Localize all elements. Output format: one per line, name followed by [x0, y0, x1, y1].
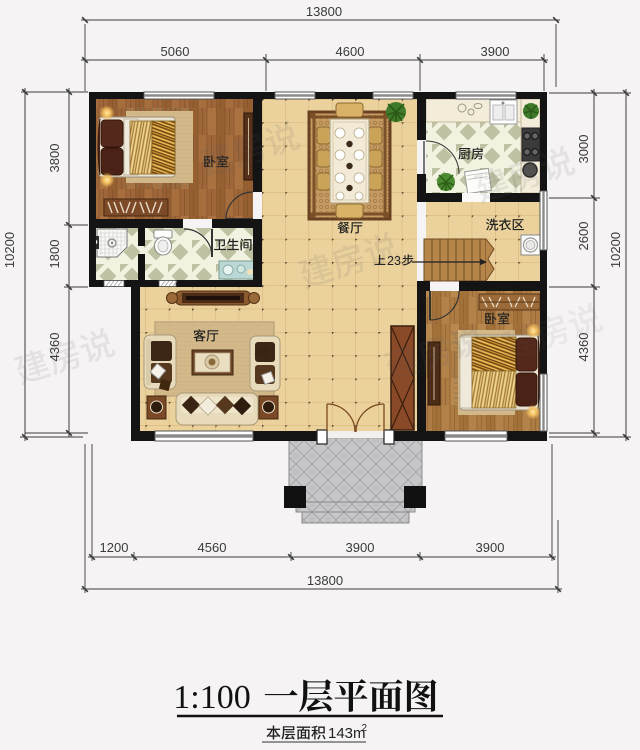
svg-text:13800: 13800 [307, 573, 343, 588]
svg-text:10200: 10200 [608, 232, 623, 268]
svg-text:143m: 143m [328, 725, 366, 742]
svg-text:4600: 4600 [336, 44, 365, 59]
svg-text:4560: 4560 [198, 540, 227, 555]
svg-text:3900: 3900 [346, 540, 375, 555]
svg-text:3900: 3900 [481, 44, 510, 59]
svg-text:1:100: 1:100 [173, 679, 250, 716]
svg-text:2600: 2600 [576, 222, 591, 251]
svg-text:3000: 3000 [576, 135, 591, 164]
svg-text:5060: 5060 [161, 44, 190, 59]
svg-text:2: 2 [362, 723, 368, 734]
svg-text:3900: 3900 [476, 540, 505, 555]
svg-text:1800: 1800 [47, 240, 62, 269]
svg-text:10200: 10200 [2, 232, 17, 268]
svg-text:13800: 13800 [306, 4, 342, 19]
svg-text:1200: 1200 [100, 540, 129, 555]
svg-text:3800: 3800 [47, 144, 62, 173]
